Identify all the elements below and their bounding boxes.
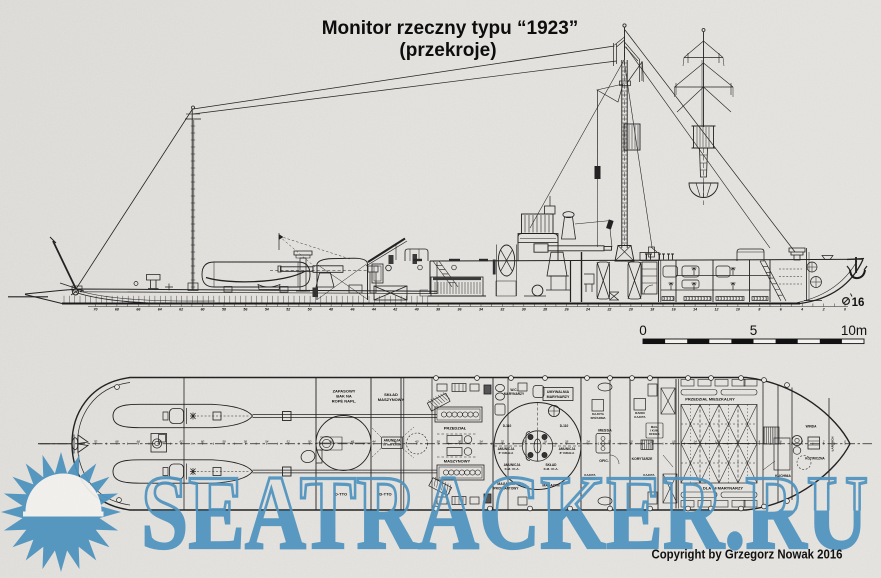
svg-text:40: 40 — [414, 308, 419, 312]
svg-text:48: 48 — [328, 308, 333, 312]
svg-text:WINDA: WINDA — [806, 425, 817, 429]
svg-text:44: 44 — [371, 308, 376, 312]
svg-text:PRZEDZIAŁ: PRZEDZIAŁ — [444, 426, 467, 431]
svg-text:MARYNARZY: MARYNARZY — [504, 392, 525, 396]
svg-text:30: 30 — [522, 308, 526, 312]
svg-text:ŁAŃCUCH: ŁAŃCUCH — [830, 437, 835, 452]
svg-text:(przekroje): (przekroje) — [399, 40, 496, 61]
svg-text:54: 54 — [265, 308, 269, 312]
svg-text:MARYNARZY: MARYNARZY — [547, 395, 570, 399]
svg-text:UMYWALNIA: UMYWALNIA — [547, 390, 570, 394]
svg-text:18: 18 — [650, 308, 654, 312]
svg-text:75 mm ŁUSK: 75 mm ŁUSK — [383, 443, 402, 447]
svg-text:70: 70 — [94, 308, 98, 312]
svg-text:58: 58 — [222, 308, 226, 312]
svg-text:22: 22 — [606, 308, 611, 312]
svg-text:SPIŻARNIA: SPIŻARNIA — [590, 415, 605, 420]
svg-text:64: 64 — [158, 308, 162, 312]
svg-text:MASZYNOWY: MASZYNOWY — [378, 397, 405, 402]
svg-text:42: 42 — [392, 308, 397, 312]
svg-text:14: 14 — [693, 308, 697, 312]
svg-text:22: 22 — [607, 439, 612, 443]
svg-text:2: 2 — [822, 308, 825, 312]
svg-text:0: 0 — [844, 308, 846, 312]
svg-text:12: 12 — [715, 308, 719, 312]
svg-text:ROPĖ NAPŁ.: ROPĖ NAPŁ. — [332, 399, 356, 404]
svg-text:60: 60 — [201, 308, 205, 312]
svg-text:OFICER.: OFICER. — [649, 432, 661, 436]
svg-text:2: 2 — [822, 439, 825, 443]
svg-text:36: 36 — [458, 439, 462, 443]
svg-text:PRZEDZIAŁ MIESZKALNY: PRZEDZIAŁ MIESZKALNY — [685, 397, 735, 402]
svg-text:8: 8 — [758, 308, 760, 312]
svg-text:D-110: D-110 — [503, 424, 512, 428]
svg-text:50: 50 — [308, 439, 312, 443]
svg-text:24: 24 — [585, 439, 590, 443]
svg-text:68: 68 — [115, 308, 119, 312]
svg-text:62: 62 — [179, 308, 183, 312]
svg-text:5: 5 — [750, 323, 758, 338]
svg-text:0: 0 — [639, 323, 647, 338]
svg-text:16: 16 — [852, 297, 865, 309]
svg-text:34: 34 — [479, 308, 483, 312]
svg-text:D-110: D-110 — [560, 424, 569, 428]
svg-text:KAJUTA: KAJUTA — [634, 415, 645, 419]
svg-text:50: 50 — [308, 308, 312, 312]
svg-text:10m: 10m — [841, 323, 867, 338]
svg-text:24: 24 — [585, 308, 590, 312]
svg-text:20: 20 — [628, 308, 633, 312]
svg-text:Monitor rzeczny typu “1923”: Monitor rzeczny typu “1923” — [322, 18, 579, 39]
svg-text:26: 26 — [564, 439, 569, 443]
svg-text:32: 32 — [500, 308, 504, 312]
svg-text:10: 10 — [736, 308, 740, 312]
svg-text:28: 28 — [542, 308, 547, 312]
svg-text:Copyright by Grzegorz Nowak 20: Copyright by Grzegorz Nowak 2016 — [652, 547, 843, 562]
svg-text:20: 20 — [628, 439, 633, 443]
svg-text:4: 4 — [800, 308, 803, 312]
svg-text:52: 52 — [286, 308, 290, 312]
svg-text:38: 38 — [436, 308, 440, 312]
